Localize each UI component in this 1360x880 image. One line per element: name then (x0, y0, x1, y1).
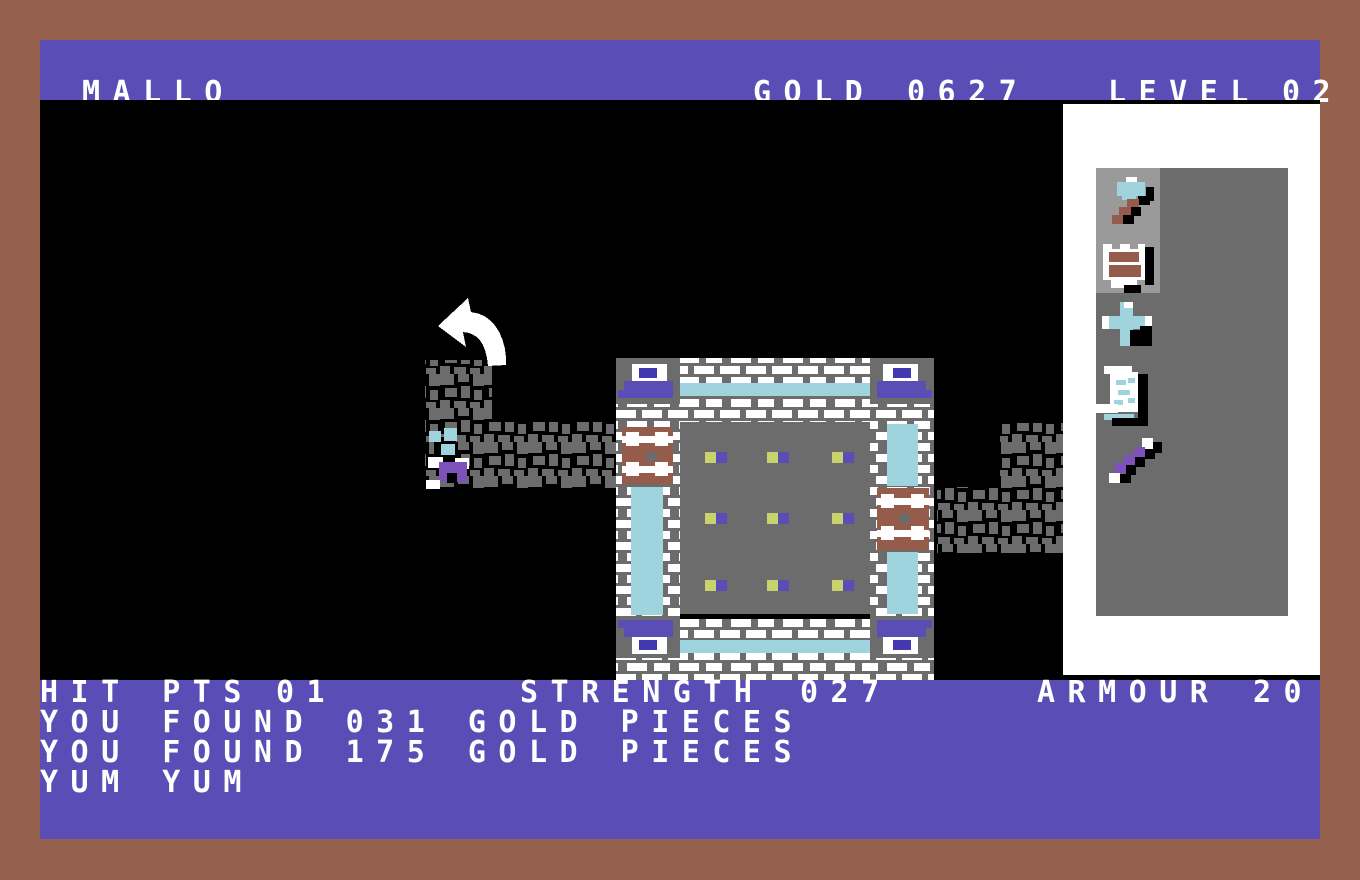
pack-item-shield[interactable] (1102, 240, 1154, 296)
door-left (622, 427, 673, 484)
door-right (877, 488, 929, 550)
direction-arrow-icon (438, 298, 506, 366)
strength-label: STRENGTH (520, 678, 765, 708)
wand-icon (1108, 434, 1162, 484)
top-status-bar: MALLO GOLD 0627 LEVEL 02 UP DOWN SEARCH … (40, 40, 1320, 100)
message-line: YOU FOUND 031 GOLD PIECES (40, 708, 804, 738)
pack-item-scroll[interactable] (1096, 362, 1154, 428)
scroll-icon (1096, 362, 1154, 428)
message-line: YOU FOUND 175 GOLD PIECES (40, 738, 804, 768)
mace-icon (1100, 174, 1156, 230)
armour-label: ARMOUR (1037, 678, 1220, 708)
pack-item-mace[interactable] (1100, 174, 1156, 230)
pack-item-wand[interactable] (1108, 434, 1162, 484)
crossbow-icon (1100, 300, 1154, 352)
message-line: YUM YUM (40, 768, 254, 798)
hit-points-label: HIT PTS (40, 678, 254, 708)
c64-screen: MALLO GOLD 0627 LEVEL 02 UP DOWN SEARCH … (0, 0, 1360, 880)
room (616, 358, 934, 680)
strength-value: 027 (800, 678, 892, 708)
hit-points-value: 01 (276, 678, 337, 708)
armour-value: 20 (1253, 678, 1314, 708)
pack-item-crossbow[interactable] (1100, 300, 1154, 352)
shield-icon (1102, 240, 1154, 296)
right-corridor (937, 423, 1063, 553)
